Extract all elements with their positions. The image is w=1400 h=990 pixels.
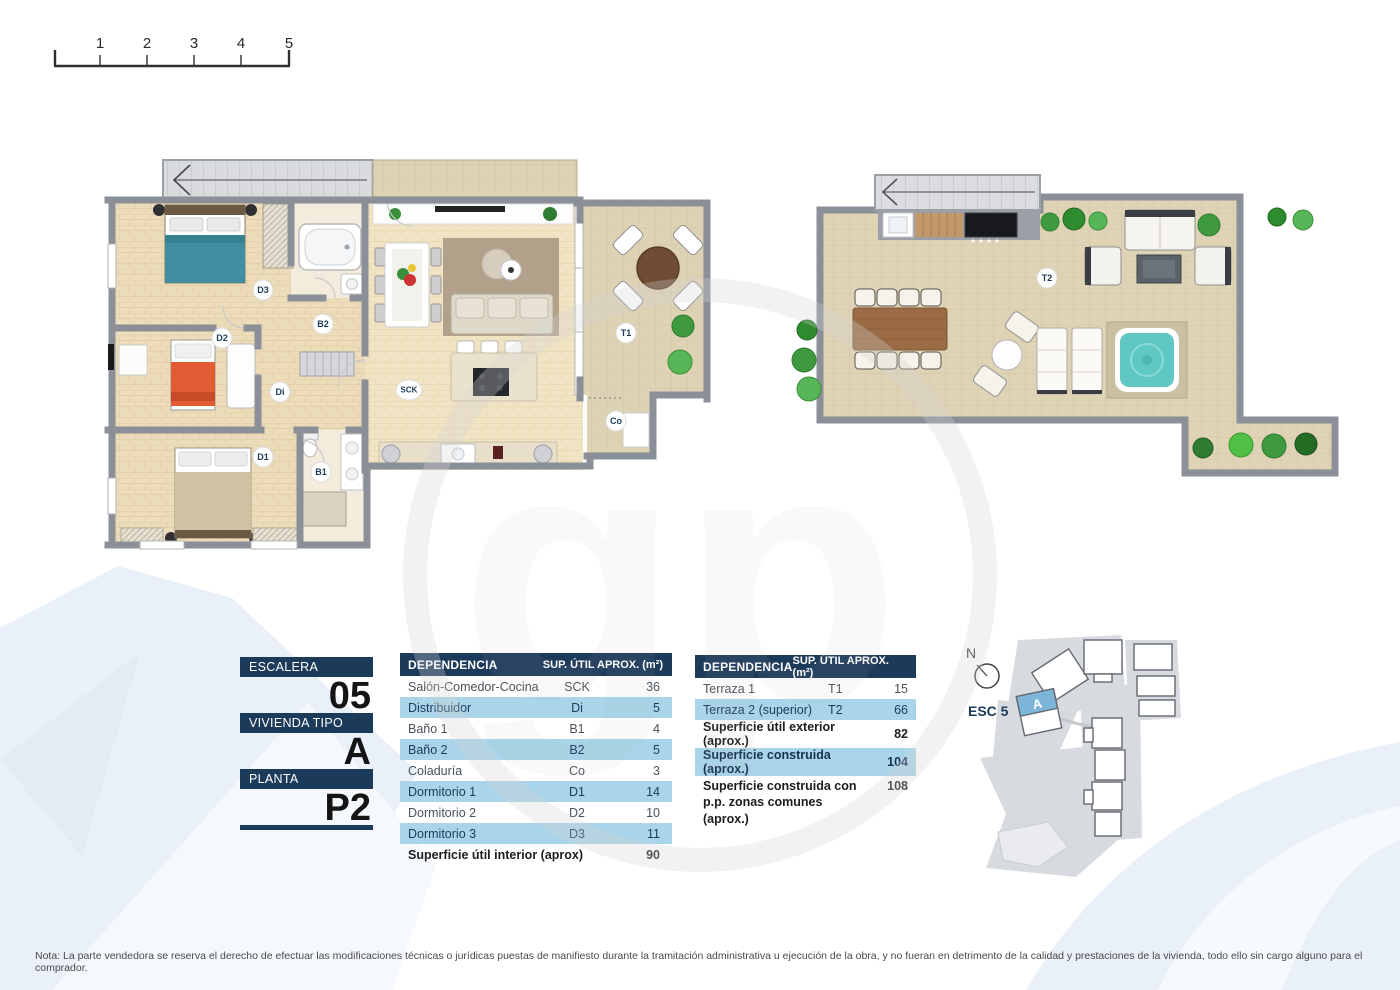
interior-areas-table: DEPENDENCIA SUP. ÚTIL APROX. (m²) Salón-… xyxy=(400,653,672,866)
scale-bar: 1 2 3 4 5 xyxy=(40,28,300,78)
header-dependencia: DEPENDENCIA xyxy=(703,660,793,674)
site-plan: A N ESC 5 xyxy=(958,632,1250,884)
room-label-co: Co xyxy=(606,411,626,431)
hot-tub xyxy=(1107,322,1187,398)
scale-tick-2: 2 xyxy=(143,35,151,52)
summary-value: 108 xyxy=(868,778,908,793)
esc-label: ESC 5 xyxy=(968,703,1009,719)
room-label-d2: D2 xyxy=(212,328,232,348)
plant xyxy=(1229,433,1253,457)
plant xyxy=(1295,433,1317,455)
room-label-t1: T1 xyxy=(616,323,636,343)
svg-text:T2: T2 xyxy=(1042,273,1053,283)
room-name-cell: Salón-Comedor-Cocina xyxy=(408,680,542,694)
kitchen-counter xyxy=(379,442,557,466)
room-area-cell: 66 xyxy=(874,703,908,717)
svg-text:D1: D1 xyxy=(257,452,269,462)
room-code-cell: Co xyxy=(542,764,612,778)
room-name-cell: Dormitorio 3 xyxy=(408,827,542,841)
unit-a-building: A xyxy=(1016,689,1061,736)
staircase-upper xyxy=(875,175,1040,210)
scale-tick-5: 5 xyxy=(285,35,293,52)
staircase xyxy=(163,160,373,200)
room-area-cell: 15 xyxy=(874,682,908,696)
scale-tick-3: 3 xyxy=(190,35,198,52)
daybed-d2 xyxy=(227,344,255,408)
svg-text:D2: D2 xyxy=(216,333,228,343)
info-panels: ESCALERA 05 VIVIENDA TIPO A PLANTA P2 xyxy=(240,657,373,830)
plant xyxy=(1063,208,1085,230)
table-row: Dormitorio 2D210 xyxy=(400,802,672,823)
main-floor-plan: D3 B2 D2 Di SCK D1 B1 Co T1 xyxy=(95,148,715,558)
summary-row: Superficie construida (aprox.)104 xyxy=(695,748,916,776)
table-footer: Superficie útil interior (aprox)90 xyxy=(400,844,672,866)
toilet-b1 xyxy=(303,432,318,457)
roof-tile-strip xyxy=(373,160,577,200)
plant xyxy=(797,320,817,340)
bed-double-d3 xyxy=(153,204,257,283)
table-row: DistribuidorDi5 xyxy=(400,697,672,718)
north-label: N xyxy=(966,645,976,661)
room-code-cell: B1 xyxy=(542,722,612,736)
room-label-t2: T2 xyxy=(1037,268,1057,288)
room-name-cell: Baño 2 xyxy=(408,743,542,757)
table-row: ColaduríaCo3 xyxy=(400,760,672,781)
summary-row: Superficie útil exterior (aprox.)82 xyxy=(695,720,916,748)
scale-tick-1: 1 xyxy=(96,35,104,52)
room-name-cell: Baño 1 xyxy=(408,722,542,736)
plant xyxy=(1268,208,1286,226)
closet-di xyxy=(300,352,354,376)
plant xyxy=(1293,210,1313,230)
room-name-cell: Terraza 2 (superior) xyxy=(703,703,828,717)
table-header: DEPENDENCIA SUP. ÚTIL APROX. (m²) xyxy=(400,653,672,676)
brochure-page: { "scale_bar": { "ticks": ["1","2","3","… xyxy=(0,0,1400,990)
washbasin-b2 xyxy=(341,274,363,294)
room-code-cell: D3 xyxy=(542,827,612,841)
dining-table xyxy=(375,243,441,327)
plant xyxy=(668,350,692,374)
shower-b1 xyxy=(302,492,346,526)
upper-terrace-plan: T2 xyxy=(785,165,1350,480)
window-wall xyxy=(575,205,583,395)
sofa-area xyxy=(443,238,559,336)
summary-label: Superficie útil exterior (aprox.) xyxy=(703,720,868,748)
room-code-cell: SCK xyxy=(542,680,612,694)
media-shelf xyxy=(373,204,573,224)
room-label-d1: D1 xyxy=(253,447,273,467)
bed-single-d2 xyxy=(171,340,215,410)
exterior-areas-table: DEPENDENCIA SUP. ÚTIL APROX. (m²) Terraz… xyxy=(695,655,916,827)
bathtub xyxy=(299,224,361,270)
svg-text:Co: Co xyxy=(610,416,622,426)
summary-label: Superficie construida con p.p. zonas com… xyxy=(703,778,868,827)
room-name-cell: Coladuría xyxy=(408,764,542,778)
summary-value: 82 xyxy=(868,727,908,741)
desk-d2 xyxy=(119,345,147,375)
room-name-cell: Terraza 1 xyxy=(703,682,828,696)
room-code-cell: Di xyxy=(542,701,612,715)
table-row: Baño 1B14 xyxy=(400,718,672,739)
outdoor-kitchen xyxy=(878,210,1040,243)
room-name-cell: Distribuidor xyxy=(408,701,542,715)
svg-text:SCK: SCK xyxy=(401,386,418,395)
escalera-value: 05 xyxy=(240,677,373,713)
room-area-cell: 14 xyxy=(612,785,660,799)
summary-row: Superficie construida con p.p. zonas com… xyxy=(695,776,916,827)
north-arrow-icon: N xyxy=(966,645,999,688)
footer-value: 90 xyxy=(612,848,660,862)
header-dependencia: DEPENDENCIA xyxy=(408,658,498,672)
scale-tick-4: 4 xyxy=(237,35,245,52)
plant xyxy=(797,377,821,401)
room-area-cell: 36 xyxy=(612,680,660,694)
summary-value: 104 xyxy=(868,755,908,769)
room-label-di: Di xyxy=(270,382,290,402)
svg-text:T1: T1 xyxy=(621,328,632,338)
room-label-d3: D3 xyxy=(253,280,273,300)
plant xyxy=(672,315,694,337)
table-row: Dormitorio 1D114 xyxy=(400,781,672,802)
table-row: Terraza 1T115 xyxy=(695,678,916,699)
room-area-cell: 10 xyxy=(612,806,660,820)
room-area-cell: 4 xyxy=(612,722,660,736)
terrace-dining-table xyxy=(853,289,947,369)
svg-text:D3: D3 xyxy=(257,285,269,295)
room-area-cell: 5 xyxy=(612,701,660,715)
plant xyxy=(1193,438,1213,458)
vivienda-tipo-value: A xyxy=(240,733,373,769)
tv-d2 xyxy=(108,344,114,370)
table-header: DEPENDENCIA SUP. ÚTIL APROX. (m²) xyxy=(695,655,916,678)
room-code-cell: D2 xyxy=(542,806,612,820)
room-label-b2: B2 xyxy=(313,314,333,334)
plant xyxy=(1262,434,1286,458)
room-name-cell: Dormitorio 1 xyxy=(408,785,542,799)
window-bench-left xyxy=(121,528,163,542)
table-row: Salón-Comedor-CocinaSCK36 xyxy=(400,676,672,697)
summary-label: Superficie construida (aprox.) xyxy=(703,748,868,776)
room-label-sck: SCK xyxy=(396,380,422,400)
plant xyxy=(1041,213,1059,231)
header-sup-util: SUP. ÚTIL APROX. (m²) xyxy=(543,659,663,671)
note-text: Nota: La parte vendedora se reserva el d… xyxy=(35,950,1380,974)
room-code-cell: B2 xyxy=(542,743,612,757)
room-label-b1: B1 xyxy=(311,462,331,482)
svg-text:Di: Di xyxy=(276,387,285,397)
table-row: Dormitorio 3D311 xyxy=(400,823,672,844)
plant xyxy=(792,348,816,372)
room-area-cell: 11 xyxy=(612,827,660,841)
table-row: Terraza 2 (superior)T266 xyxy=(695,699,916,720)
escalera-label: ESCALERA xyxy=(240,657,373,677)
laundry-appliance xyxy=(623,413,649,447)
table-row: Baño 2B25 xyxy=(400,739,672,760)
window-bench-right xyxy=(253,528,297,542)
header-sup-util: SUP. ÚTIL APROX. (m²) xyxy=(793,655,907,679)
room-area-cell: 3 xyxy=(612,764,660,778)
footer-label: Superficie útil interior (aprox) xyxy=(408,848,612,862)
svg-text:B1: B1 xyxy=(315,467,327,477)
svg-text:B2: B2 xyxy=(317,319,329,329)
room-code-cell: T1 xyxy=(828,682,874,696)
room-name-cell: Dormitorio 2 xyxy=(408,806,542,820)
room-area-cell: 5 xyxy=(612,743,660,757)
plant xyxy=(1089,212,1107,230)
bed-double-d1 xyxy=(165,448,261,544)
room-code-cell: D1 xyxy=(542,785,612,799)
vanity-b1 xyxy=(341,434,363,490)
planta-value: P2 xyxy=(240,789,373,825)
room-code-cell: T2 xyxy=(828,703,874,717)
